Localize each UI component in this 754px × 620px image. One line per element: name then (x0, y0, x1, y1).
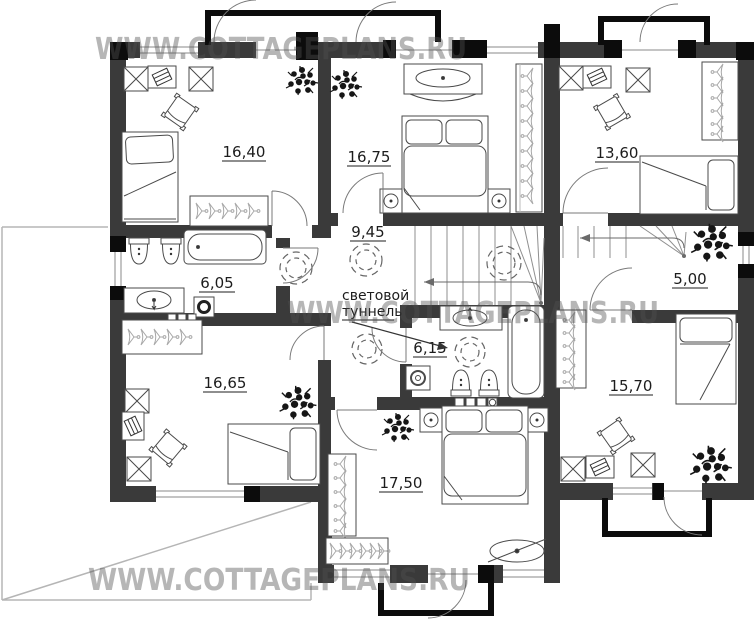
light-tunnel-icon (455, 337, 485, 367)
room-15-70 (556, 310, 736, 484)
wardrobe-box-icon (125, 389, 149, 413)
plant-icon (690, 446, 732, 484)
wardrobe-icon (702, 62, 738, 142)
bay-bottom-right (605, 498, 709, 534)
single-bed-icon (228, 424, 320, 484)
wardrobe-box-icon (561, 457, 585, 481)
washing-machine-icon (406, 366, 430, 390)
light-tunnel-icon (487, 246, 521, 280)
armchair-icon (597, 417, 635, 455)
chimney (544, 24, 560, 58)
wardrobe-box-icon (124, 67, 148, 91)
toilet-icon (451, 370, 471, 396)
room-16-40 (122, 66, 318, 226)
floor-plan-page: 16,40 16,75 13,60 6,05 9,45 5,00 16,65 6… (0, 0, 754, 620)
room-13-60 (559, 62, 738, 214)
sink-icon (124, 288, 184, 313)
desk-icon (583, 66, 611, 88)
bathtub-icon (184, 230, 266, 264)
nightstand-icon (488, 189, 510, 213)
nightstand-icon (420, 408, 442, 432)
watermark-top: WWW.COTTAGEPLANS.RU (95, 32, 467, 67)
nightstand-icon (526, 408, 548, 432)
room-area-label: 16,40 (223, 143, 266, 161)
single-bed-icon (122, 132, 178, 222)
room-area-label: 9,45 (351, 223, 384, 241)
toilet-icon (161, 238, 181, 264)
staircase-left (415, 226, 544, 305)
desk-icon (148, 66, 176, 88)
armchair-icon (149, 429, 187, 467)
plant-icon (382, 413, 414, 442)
room-17-50 (326, 406, 548, 564)
wardrobe-box-icon (127, 457, 151, 481)
hanger-rack-icon (122, 320, 202, 354)
door-arc (337, 410, 377, 450)
hanger-rack-icon (190, 196, 268, 226)
room-area-label: 17,50 (380, 474, 423, 492)
light-tunnel-icon (352, 334, 382, 364)
room-area-label: 6,05 (200, 274, 233, 292)
single-bed-icon (676, 314, 736, 404)
room-16-75 (330, 64, 542, 213)
wardrobe-box-icon (626, 68, 650, 92)
desk-icon (586, 456, 614, 478)
room-area-label: 5,00 (673, 270, 706, 288)
armchair-icon (594, 94, 631, 131)
radiator-icon (326, 538, 390, 564)
plant-icon (330, 70, 362, 99)
door-arc (563, 168, 608, 213)
door-arc (272, 191, 307, 226)
staircase-right (563, 226, 686, 258)
stair-direction-arrow (424, 278, 434, 286)
stair-direction-arrow (580, 234, 590, 242)
armchair-icon (161, 93, 199, 131)
room-16-65 (122, 320, 320, 484)
wardrobe-icon (516, 64, 542, 212)
toilet-icon (479, 370, 499, 396)
wardrobe-box-icon (189, 67, 213, 91)
terrace-outline (2, 227, 311, 600)
plant-icon (280, 386, 317, 419)
door-arc (664, 497, 702, 535)
dresser-tv-icon (404, 64, 482, 101)
wardrobe-box-icon (559, 66, 583, 90)
door-arc (640, 4, 678, 42)
watermark-bottom: WWW.COTTAGEPLANS.RU (88, 563, 470, 598)
room-area-label: 13,60 (596, 144, 639, 162)
wardrobe-box-icon (631, 453, 655, 477)
ceiling-fan-icon (488, 539, 546, 562)
floor-plan: 16,40 16,75 13,60 6,05 9,45 5,00 16,65 6… (0, 0, 754, 620)
washing-machine-icon (194, 297, 214, 317)
watermark-middle: WWW.COTTAGEPLANS.RU (287, 296, 659, 331)
double-bed-icon (442, 406, 528, 504)
single-bed-icon (640, 156, 738, 214)
wardrobe-icon (328, 454, 356, 539)
double-bed-icon (402, 116, 488, 213)
bathroom-6-05 (124, 230, 266, 322)
door-arc (343, 173, 383, 213)
plant-icon (286, 66, 318, 95)
desk-icon (122, 412, 144, 440)
room-area-label: 15,70 (610, 377, 653, 395)
room-area-label: 16,65 (204, 374, 247, 392)
wall-16-40-16-75 (318, 42, 331, 225)
light-tunnel-icon (350, 244, 382, 276)
toilet-icon (129, 238, 149, 264)
room-area-label: 16,75 (348, 148, 391, 166)
plant-icon (691, 224, 733, 262)
